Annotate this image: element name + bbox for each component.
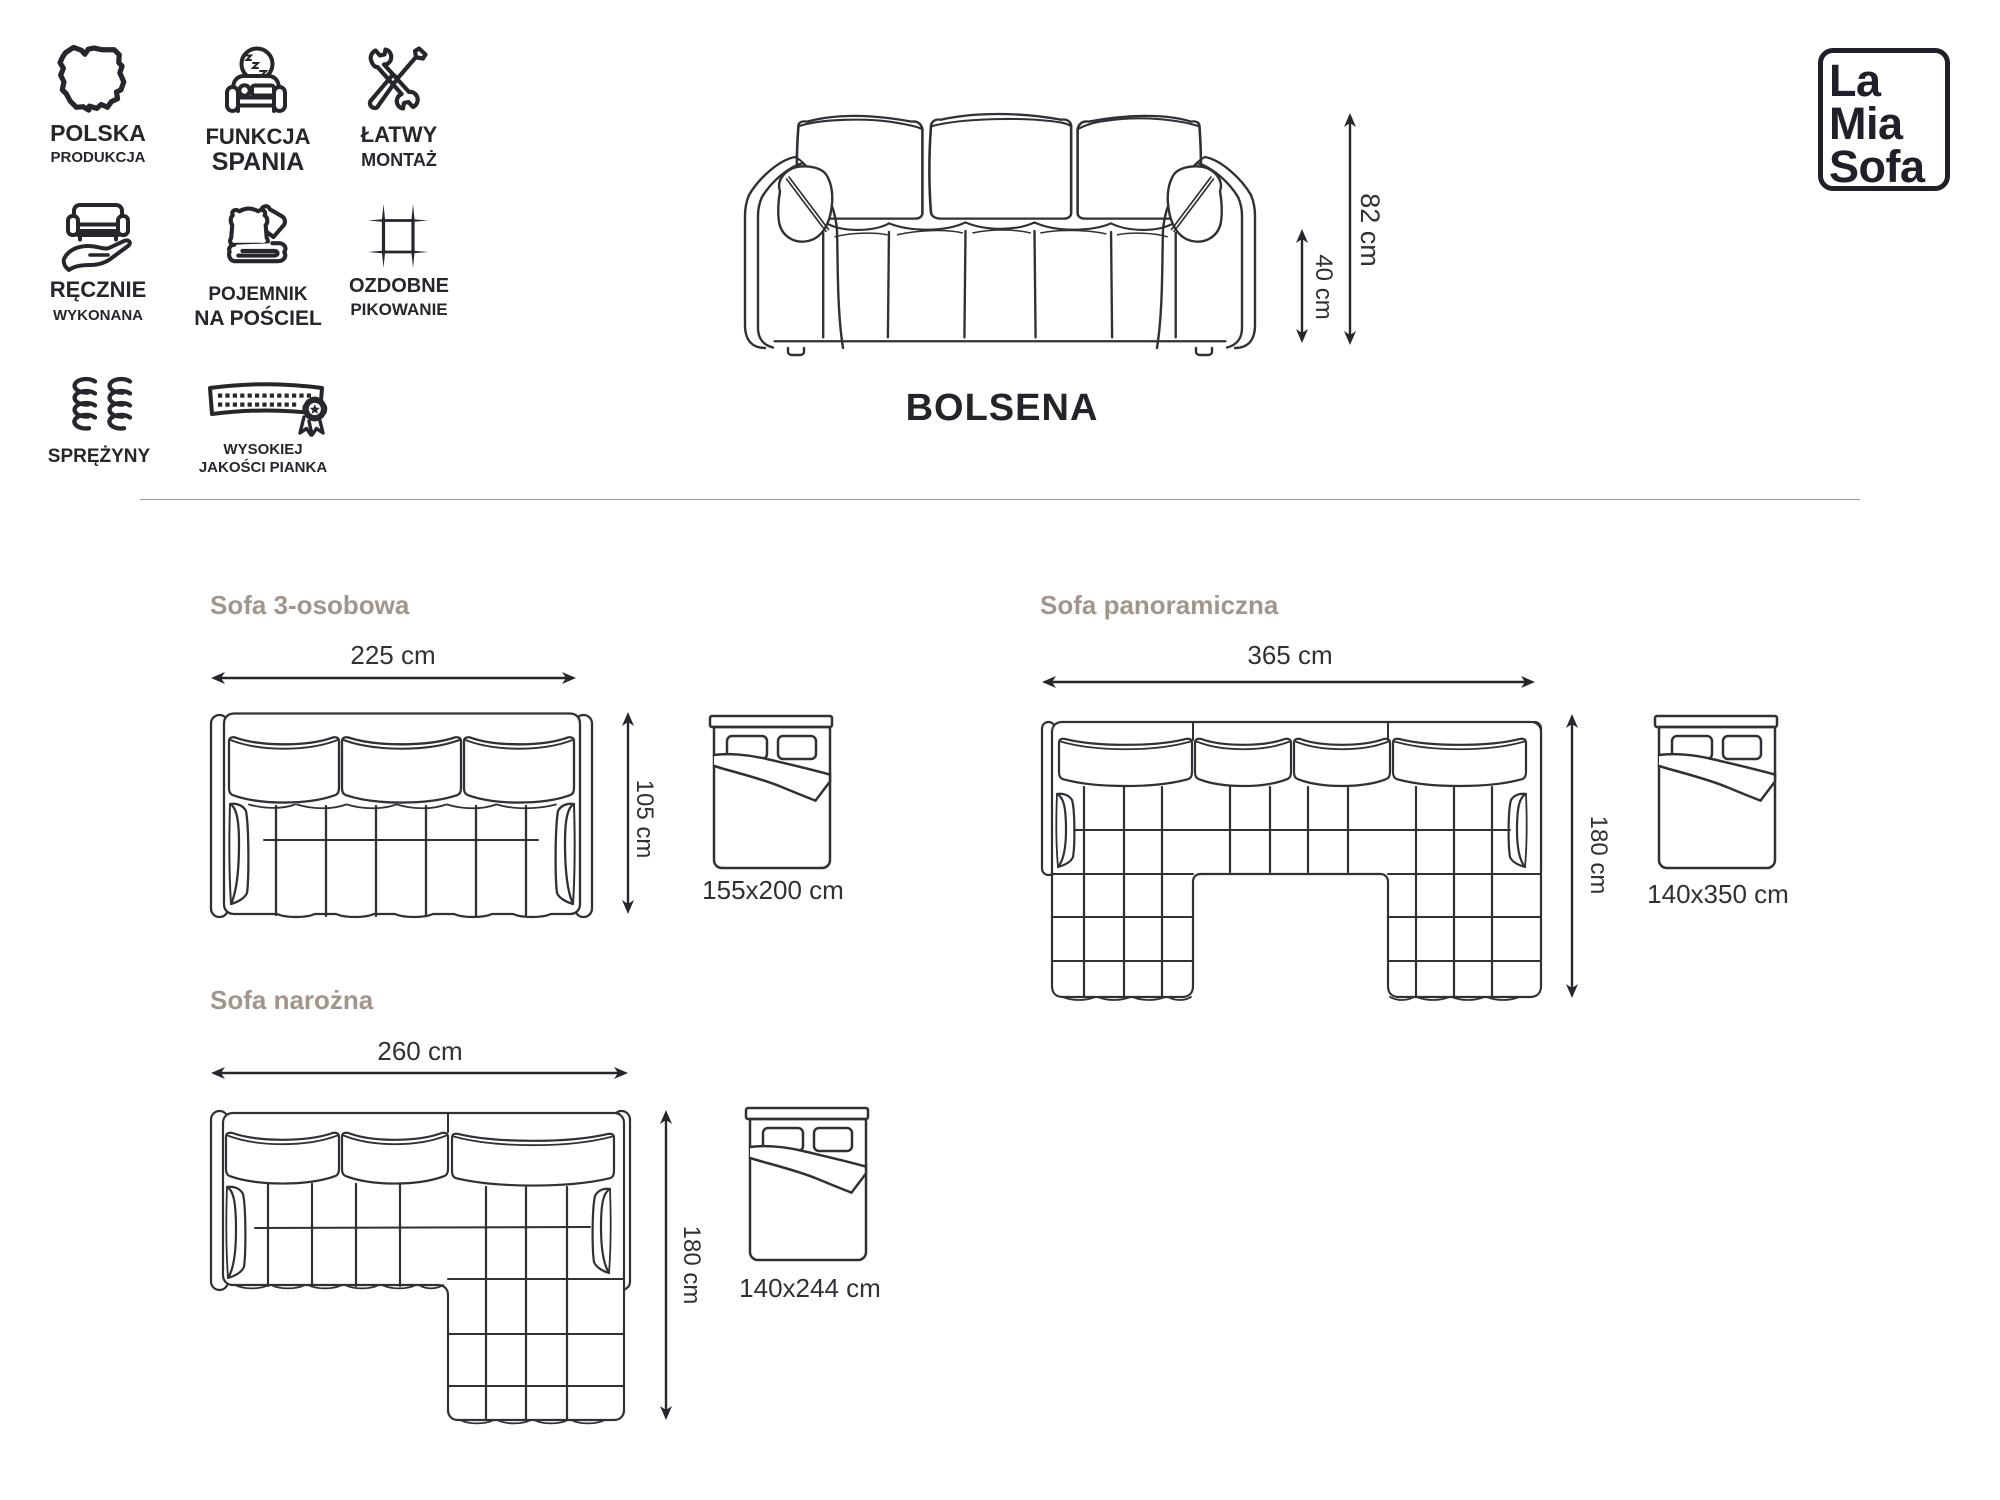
svg-text:180 cm: 180 cm bbox=[678, 1226, 705, 1305]
svg-text:180 cm: 180 cm bbox=[1585, 816, 1612, 895]
svg-text:82 cm: 82 cm bbox=[1355, 193, 1385, 267]
svg-text:105 cm: 105 cm bbox=[631, 780, 658, 859]
svg-text:40 cm: 40 cm bbox=[1310, 254, 1337, 319]
